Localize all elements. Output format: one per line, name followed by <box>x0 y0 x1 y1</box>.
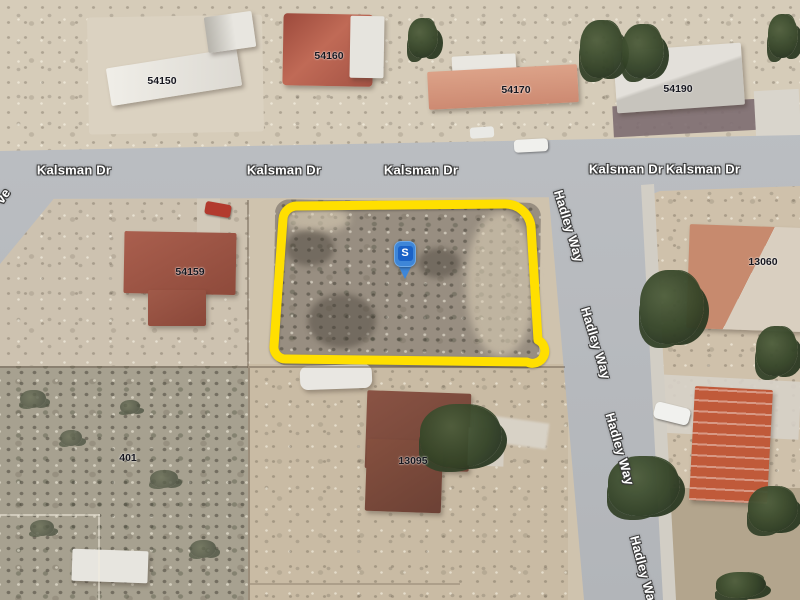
satellite-map[interactable]: S Kalsman Dr Kalsman Dr Kalsman Dr Kalsm… <box>0 0 800 600</box>
parcel-number-13060: 13060 <box>748 256 777 268</box>
street-label-kalsman-dr-4: Kalsman Dr <box>589 162 663 177</box>
parcel-number-54190: 54190 <box>663 83 692 95</box>
marker-letter: S <box>401 248 408 259</box>
parcel-outline-path[interactable] <box>274 204 545 363</box>
parcel-number-54160: 54160 <box>314 50 343 62</box>
street-label-kalsman-dr-3: Kalsman Dr <box>384 163 458 178</box>
street-label-kalsman-dr-1: Kalsman Dr <box>37 163 111 178</box>
street-label-kalsman-dr-5: Kalsman Dr <box>666 162 740 177</box>
parcel-number-54150: 54150 <box>147 75 176 87</box>
parcel-number-13095: 13095 <box>398 455 427 467</box>
parcel-number-54170: 54170 <box>501 84 530 96</box>
parcel-number-54159: 54159 <box>175 266 204 278</box>
marker-tail <box>398 265 412 279</box>
marker-letter-badge: S <box>398 246 413 261</box>
parcel-number-401: 401 <box>119 452 137 464</box>
street-label-kalsman-dr-2: Kalsman Dr <box>247 163 321 178</box>
property-marker[interactable]: S <box>394 241 416 283</box>
